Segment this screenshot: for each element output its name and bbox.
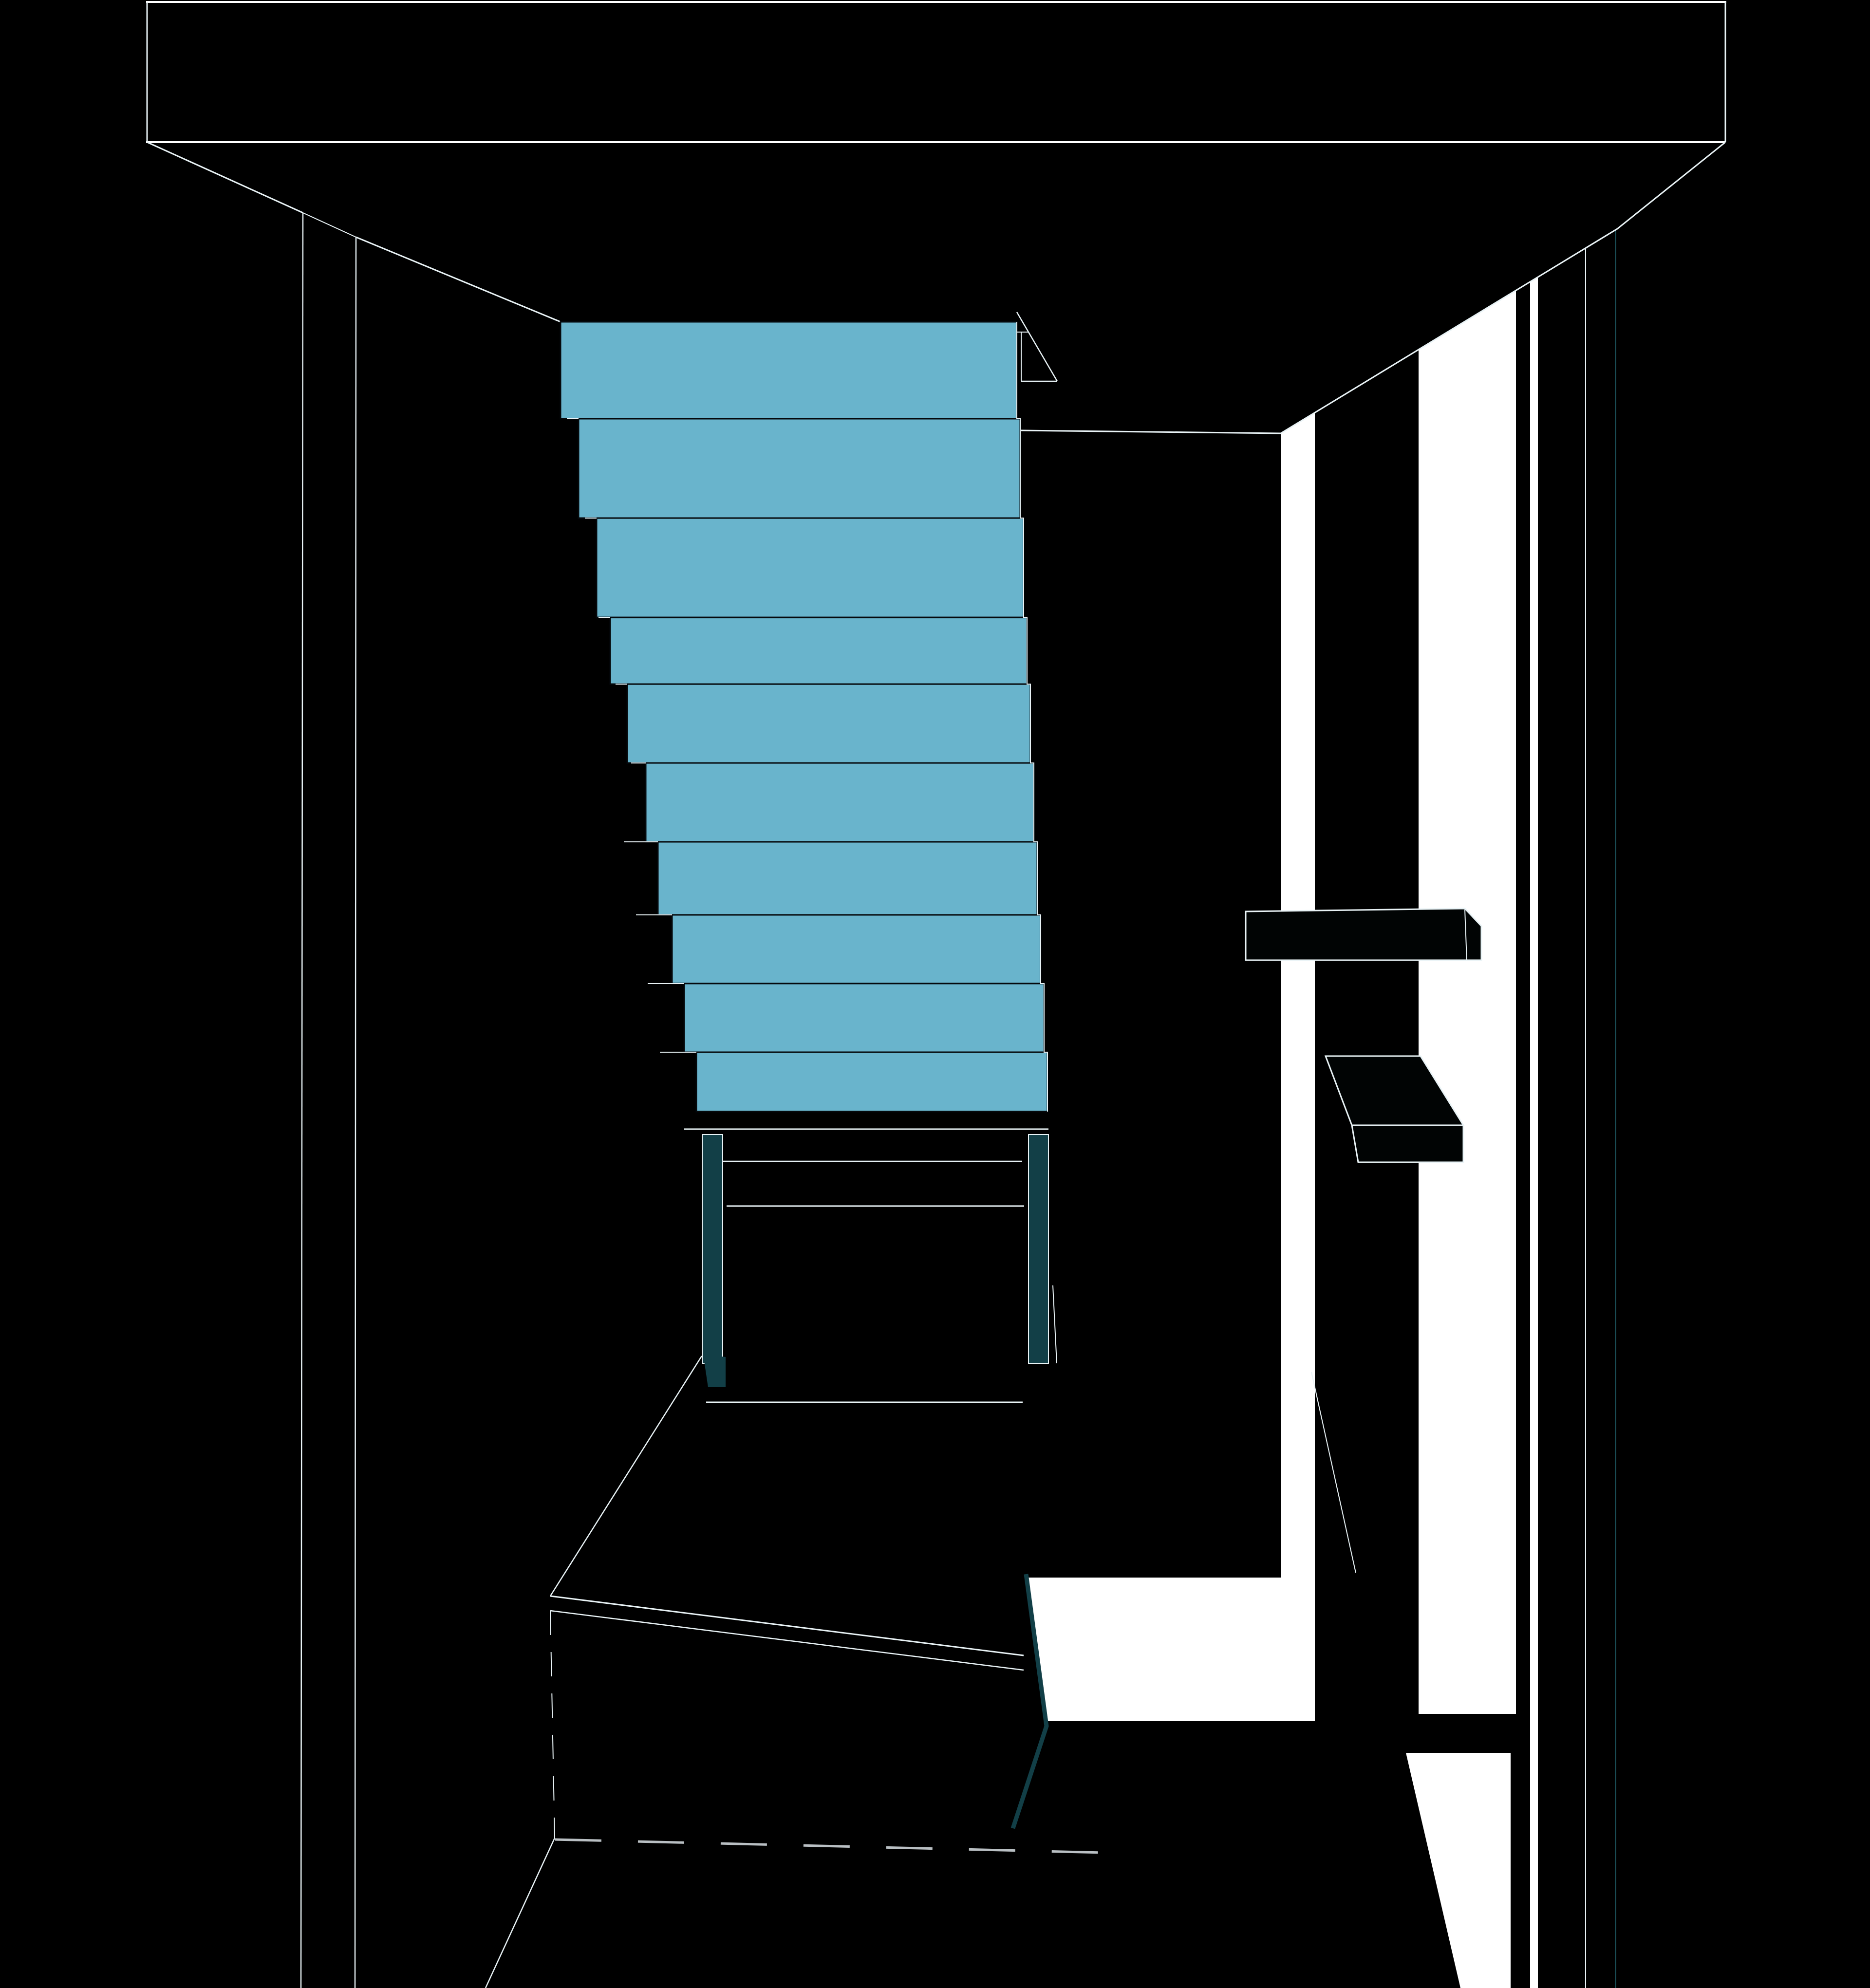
stair-step-4 <box>610 617 1027 684</box>
table-right-leg <box>1028 1134 1048 1363</box>
table-left-leg <box>702 1134 723 1363</box>
lower-shelf-front <box>1352 1125 1463 1162</box>
doorway-strip-left <box>1281 412 1315 1714</box>
floor-light-patch <box>1028 1578 1315 1721</box>
stair-step-10 <box>696 1052 1047 1112</box>
stair-step-9 <box>684 984 1044 1052</box>
stair-step-5 <box>627 684 1030 763</box>
doorway-strip-main <box>1419 291 1516 1714</box>
upper-shelf <box>1246 909 1481 960</box>
scene-svg <box>0 0 1870 1988</box>
stair-step-2 <box>579 419 1020 518</box>
stair-step-1 <box>561 322 1017 419</box>
stair-step-7 <box>658 842 1037 915</box>
stair-step-8 <box>672 915 1041 984</box>
doorway-strip-narrow <box>1530 278 1538 1988</box>
stair-step-3 <box>597 518 1024 617</box>
stair-step-6 <box>646 763 1034 842</box>
architectural-rendering: Black-and-white 3D architectural interio… <box>0 0 1870 1988</box>
